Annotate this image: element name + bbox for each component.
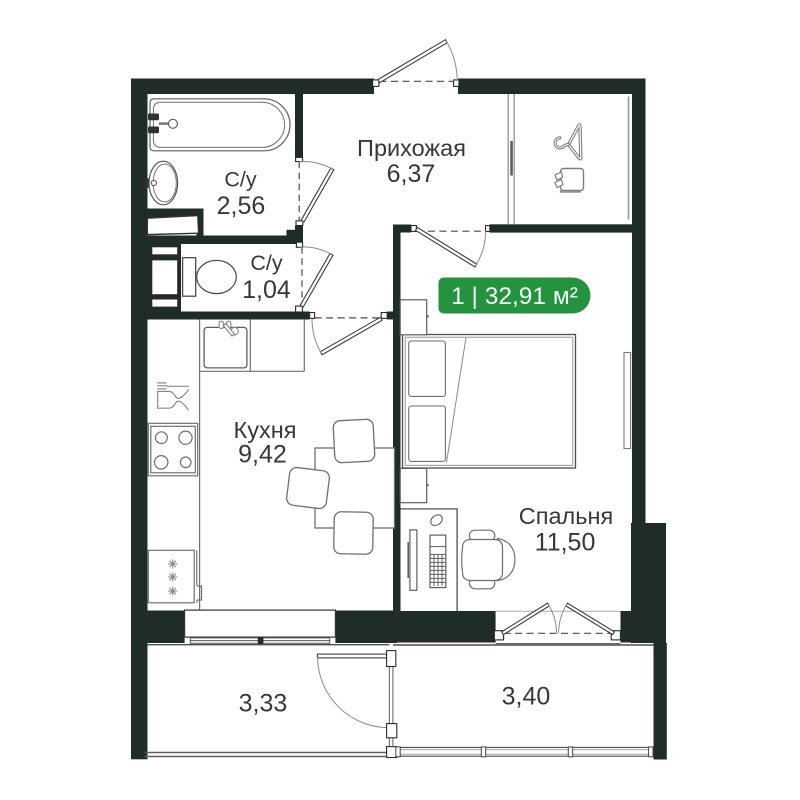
svg-text:6,37: 6,37 [387,160,436,188]
svg-text:С/у: С/у [224,168,257,192]
svg-text:3,33: 3,33 [239,690,288,718]
svg-text:3,40: 3,40 [502,683,551,711]
svg-text:1 | 32,91 м²: 1 | 32,91 м² [451,283,578,310]
svg-text:Прихожая: Прихожая [357,135,466,161]
svg-text:Кухня: Кухня [234,417,297,443]
svg-text:Спальня: Спальня [519,503,613,529]
svg-text:11,50: 11,50 [535,529,596,557]
svg-text:С/у: С/у [250,251,283,275]
svg-text:2,56: 2,56 [217,192,266,220]
svg-text:1,04: 1,04 [242,276,291,304]
svg-text:9,42: 9,42 [238,441,287,469]
